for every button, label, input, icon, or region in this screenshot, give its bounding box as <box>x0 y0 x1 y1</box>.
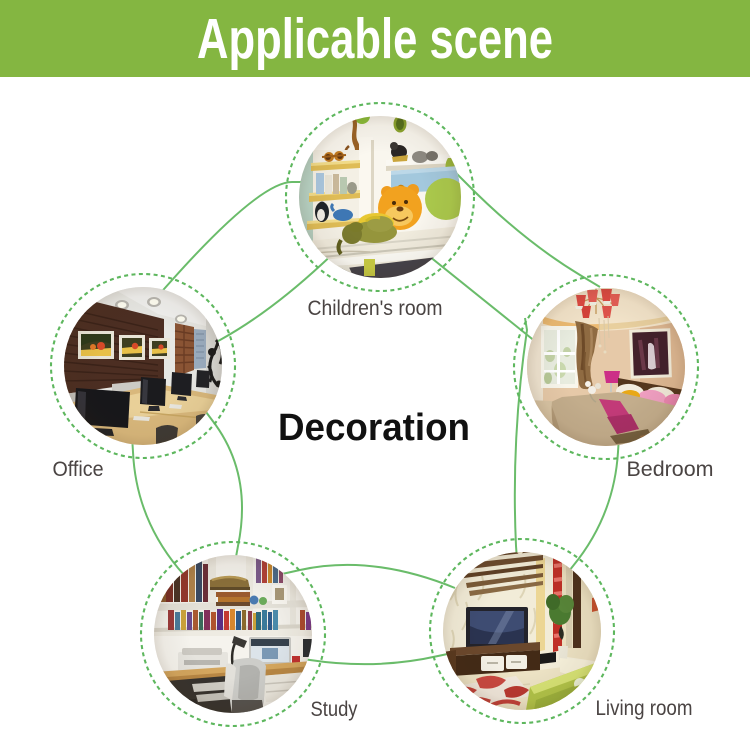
svg-text:Office: Office <box>53 458 104 481</box>
svg-text:Applicable scene: Applicable scene <box>197 7 553 71</box>
svg-text:Decoration: Decoration <box>278 407 470 449</box>
svg-text:Living room: Living room <box>596 697 693 720</box>
svg-text:Study: Study <box>311 698 358 721</box>
svg-text:Bedroom: Bedroom <box>627 458 714 481</box>
svg-text:Children's room: Children's room <box>308 297 443 320</box>
